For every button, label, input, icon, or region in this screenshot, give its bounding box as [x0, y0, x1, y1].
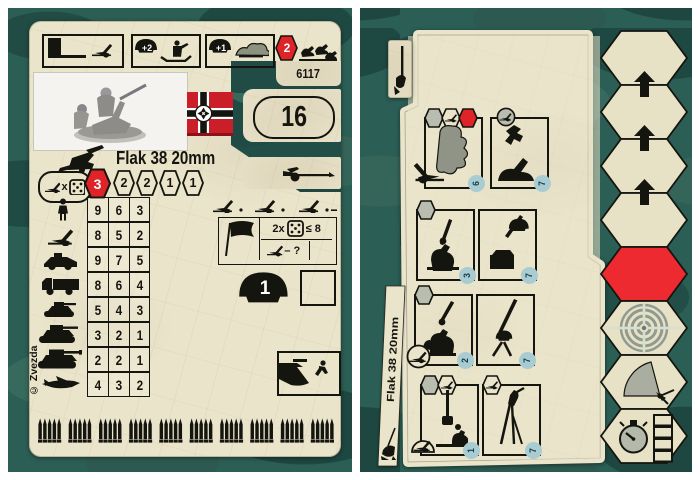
camouflage-bonus-value: +1	[211, 41, 231, 55]
nation-flag	[187, 92, 233, 136]
fire-value: 2	[108, 347, 130, 372]
unit-title: Flak 38 20mm	[116, 148, 286, 170]
scan-of-game-cards: +2 +1 2 6117	[0, 0, 700, 480]
fire-value: 3	[129, 297, 150, 322]
attack-hex: 2	[136, 170, 158, 196]
fire-value: 6	[108, 272, 130, 297]
armored-car-icon	[38, 248, 86, 271]
product-number-tab: 6117	[276, 61, 341, 86]
fire-value: 2	[87, 347, 109, 372]
fire-value: 2	[108, 322, 130, 347]
fire-value: 9	[87, 247, 109, 272]
flag-icon	[219, 218, 259, 260]
gun-icon	[267, 244, 283, 257]
stopwatch-icon	[620, 420, 647, 453]
attack-hex: 2	[113, 170, 135, 196]
order-step-badge: 7	[534, 175, 551, 192]
fire-arc-hex	[600, 354, 688, 410]
assault-panel: 2x ≤ 8 – ?	[218, 217, 337, 265]
fire-value: 3	[87, 322, 109, 347]
fire-value: 8	[87, 222, 109, 247]
aa-gun-art	[478, 296, 529, 360]
fire-value: 5	[129, 247, 150, 272]
fire-value: 8	[87, 272, 109, 297]
target-hex-red	[600, 246, 688, 302]
gun-icon	[45, 181, 60, 194]
unit-photo	[33, 72, 188, 151]
double-attack-cell: 2x ≤ 8	[261, 218, 333, 240]
fire-value: 3	[129, 197, 150, 222]
fire-value: 6	[108, 197, 130, 222]
bunker-gun-icon	[44, 36, 118, 62]
order-step-badge: 3	[459, 267, 476, 284]
light-tank-icon	[40, 297, 86, 321]
advance-arrow-icon	[634, 179, 655, 205]
entrench-art	[492, 119, 543, 183]
points-badge: 16	[253, 96, 335, 139]
fire-value: 3	[108, 372, 130, 397]
vertical-gun-icon	[388, 40, 412, 98]
order-step-badge: 1	[463, 442, 480, 459]
fire-value: 5	[108, 222, 130, 247]
points-value: 16	[281, 101, 307, 134]
fire-value: 9	[87, 197, 109, 222]
double-label: 2x	[272, 223, 284, 235]
turn-track-icon	[654, 415, 672, 462]
bunker-art	[480, 211, 531, 275]
empty-result-cell	[309, 241, 334, 261]
medium-tank-icon	[36, 321, 86, 346]
dice-limit-label: ≤ 8	[306, 223, 321, 235]
miniature-model-image	[34, 73, 185, 148]
tall-gun-art	[484, 386, 535, 450]
anti-tank-gun-icon	[40, 224, 84, 246]
infantry-icon	[48, 198, 78, 221]
title-label-gun-icon	[379, 426, 403, 460]
advance-arrow-icon	[634, 71, 655, 97]
range-markers-icon	[213, 197, 337, 213]
order-step-badge: 6	[468, 175, 485, 192]
strength-loss-box	[300, 270, 336, 306]
aircraft-icon	[38, 370, 86, 395]
penalty-label: – ?	[284, 245, 300, 257]
heavy-tank-icon	[36, 346, 86, 371]
advance-arrow-icon	[634, 125, 655, 151]
attack-hex: 1	[159, 170, 181, 196]
timer-hex	[600, 408, 688, 464]
truck-icon	[38, 273, 86, 296]
order-step-badge: 7	[521, 267, 538, 284]
trench-bonus-icon-box: +2	[131, 34, 201, 68]
copyright: © Zvezda	[27, 332, 41, 410]
die-icon	[287, 220, 304, 237]
penalty-cell: – ?	[261, 241, 307, 261]
fortification-icon-box	[42, 34, 124, 68]
fire-value: 7	[108, 247, 130, 272]
fire-value: 2	[129, 222, 150, 247]
fire-value: 2	[129, 372, 150, 397]
crosshair-hex	[600, 300, 688, 356]
gun-shield-icon	[410, 432, 436, 458]
product-number: 6117	[297, 66, 321, 81]
gun-crew-art	[418, 211, 469, 275]
ammo-strip	[38, 418, 334, 444]
order-step-badge: 2	[457, 352, 474, 369]
fire-value: 1	[129, 322, 150, 347]
fire-value: 5	[87, 297, 109, 322]
strength-marker: 1	[237, 268, 293, 308]
attack-hex-primary: 3	[84, 168, 111, 199]
circled-gun-icon	[406, 344, 431, 369]
deploy-tab	[388, 40, 412, 98]
order-step-badge: 7	[525, 442, 542, 459]
gun-art	[410, 158, 444, 188]
order-card-title: Flak 38 20mm	[384, 292, 401, 426]
camouflage-bonus-icon-box: +1	[205, 34, 275, 68]
fire-value: 4	[108, 297, 130, 322]
tank-overrun-icon	[279, 353, 335, 390]
times-label: x	[61, 181, 67, 193]
trench-bonus-value: +2	[137, 41, 157, 55]
die-icon	[69, 179, 85, 195]
fire-value: 4	[129, 272, 150, 297]
attack-hex: 1	[182, 170, 204, 196]
move-value: 2	[276, 38, 298, 58]
flag-cell	[219, 218, 260, 260]
order-step-badge: 7	[519, 352, 536, 369]
overrun-box	[277, 351, 341, 396]
fire-value: 4	[87, 372, 109, 397]
fire-value: 1	[129, 347, 150, 372]
